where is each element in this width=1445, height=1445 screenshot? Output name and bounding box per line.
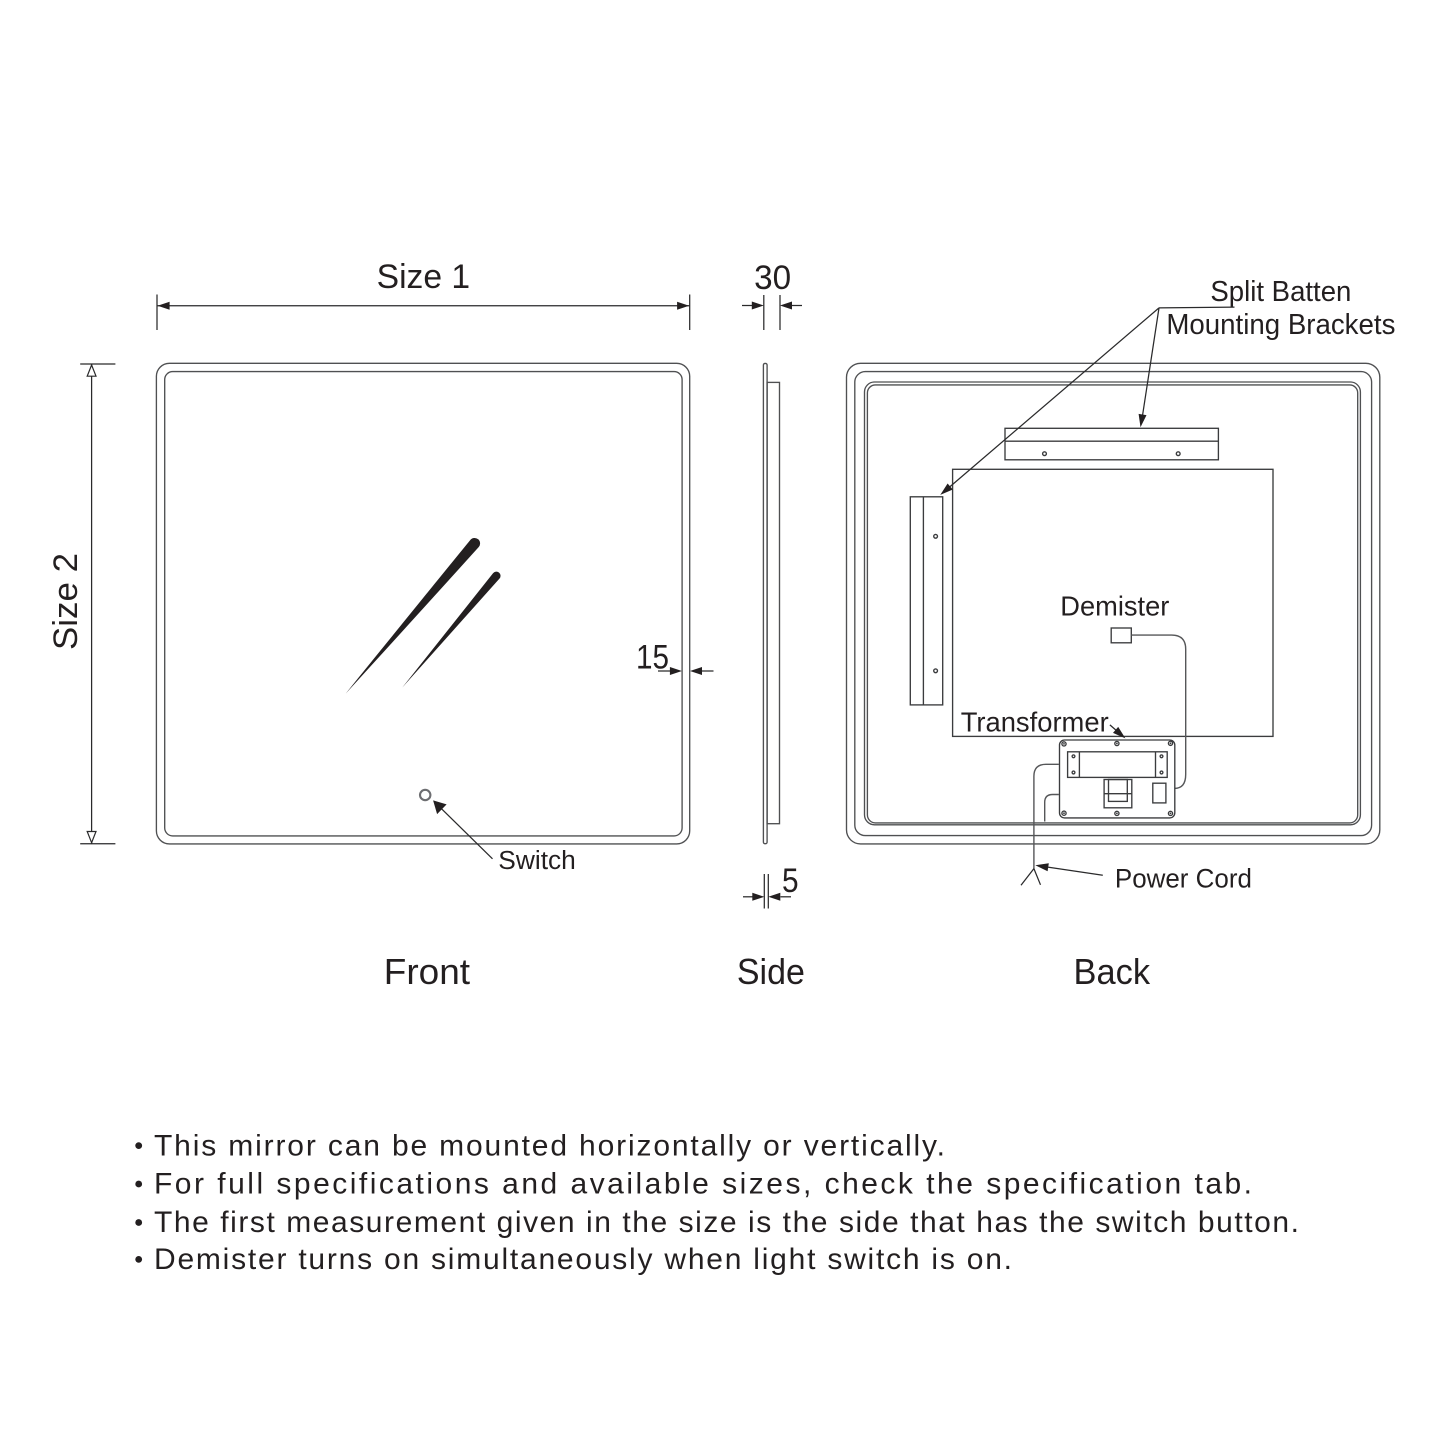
svg-text:Demister: Demister <box>1060 591 1169 622</box>
svg-text:Mounting Brackets: Mounting Brackets <box>1166 309 1395 341</box>
svg-text:30: 30 <box>754 259 791 297</box>
svg-text:Size 1: Size 1 <box>377 258 471 296</box>
svg-text:Power Cord: Power Cord <box>1115 863 1252 893</box>
svg-text:Demister turns on simultaneous: Demister turns on simultaneously when li… <box>154 1243 1012 1276</box>
svg-text:Size 2: Size 2 <box>47 553 85 650</box>
svg-text:Split Batten: Split Batten <box>1210 276 1351 308</box>
svg-text:Transformer: Transformer <box>961 707 1109 738</box>
svg-text:5: 5 <box>782 862 799 900</box>
svg-text:Front: Front <box>384 951 470 992</box>
svg-text:This mirror can be mounted hor: This mirror can be mounted horizontally … <box>154 1129 945 1162</box>
svg-text:Side: Side <box>737 951 805 992</box>
svg-text:Back: Back <box>1074 951 1151 992</box>
svg-text:Switch: Switch <box>498 847 576 875</box>
svg-text:The first measurement given in: The first measurement given in the size … <box>154 1206 1299 1239</box>
